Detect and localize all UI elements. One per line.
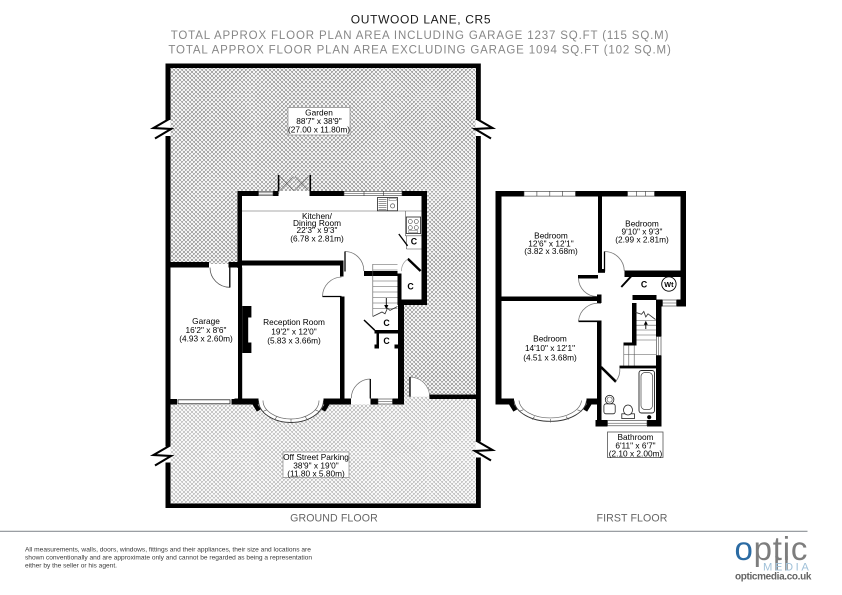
svg-text:(27.00 x 11.80m): (27.00 x 11.80m) xyxy=(288,125,350,135)
svg-text:C: C xyxy=(411,237,418,247)
svg-text:(4.51 x 3.68m): (4.51 x 3.68m) xyxy=(523,353,577,363)
svg-text:shown conventionally and are a: shown conventionally and are approximate… xyxy=(25,555,312,562)
svg-text:GROUND FLOOR: GROUND FLOOR xyxy=(290,513,378,525)
svg-text:Reception Room: Reception Room xyxy=(263,317,325,327)
svg-text:TOTAL APPROX FLOOR PLAN AREA I: TOTAL APPROX FLOOR PLAN AREA INCLUDING G… xyxy=(171,30,670,42)
svg-text:(2.10 x 2.00m): (2.10 x 2.00m) xyxy=(609,449,663,459)
svg-text:Bedroom: Bedroom xyxy=(533,334,567,344)
svg-text:OUTWOOD LANE, CR5: OUTWOOD LANE, CR5 xyxy=(351,13,491,27)
svg-text:(5.83 x 3.66m): (5.83 x 3.66m) xyxy=(267,336,321,346)
svg-text:C: C xyxy=(383,336,390,346)
svg-text:(11.80 x 5.80m): (11.80 x 5.80m) xyxy=(287,469,345,479)
svg-text:TOTAL APPROX FLOOR PLAN AREA E: TOTAL APPROX FLOOR PLAN AREA EXCLUDING G… xyxy=(168,45,671,57)
svg-text:14'10" x 12'1": 14'10" x 12'1" xyxy=(525,343,575,353)
svg-text:(6.78 x 2.81m): (6.78 x 2.81m) xyxy=(290,234,344,244)
svg-text:C: C xyxy=(641,280,648,290)
svg-text:(4.93 x 2.60m): (4.93 x 2.60m) xyxy=(179,334,233,344)
svg-text:C: C xyxy=(383,318,390,328)
svg-text:FIRST FLOOR: FIRST FLOOR xyxy=(597,513,668,525)
svg-text:All measurements, walls, doors: All measurements, walls, doors, windows,… xyxy=(25,547,311,554)
svg-text:opticmedia.co.uk: opticmedia.co.uk xyxy=(735,572,812,583)
svg-text:(2.99 x 2.81m): (2.99 x 2.81m) xyxy=(615,235,669,245)
svg-text:C: C xyxy=(407,281,414,291)
svg-text:(3.82 x 3.68m): (3.82 x 3.68m) xyxy=(524,246,578,256)
svg-text:Wt: Wt xyxy=(664,280,674,289)
svg-text:either by the seller or his ag: either by the seller or his agent. xyxy=(25,563,117,570)
